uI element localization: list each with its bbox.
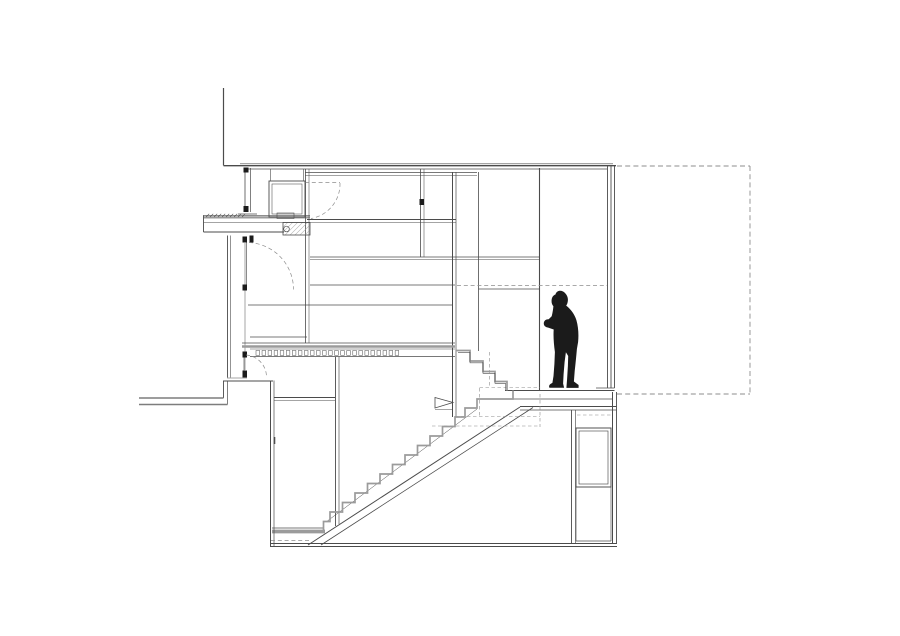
mullion-mark xyxy=(243,352,248,358)
edge-beam-hatched xyxy=(283,223,310,236)
architectural-section-drawing xyxy=(0,0,900,636)
mullion-mark xyxy=(243,285,248,291)
mullion-mark xyxy=(244,206,249,212)
mullion-mark xyxy=(244,168,249,173)
mullion-mark xyxy=(243,371,248,378)
mullion-mark xyxy=(243,237,248,243)
mullion-mark xyxy=(250,236,254,243)
mullion-mark xyxy=(420,199,425,205)
paper-background xyxy=(0,0,900,636)
drawing-canvas xyxy=(0,0,900,636)
